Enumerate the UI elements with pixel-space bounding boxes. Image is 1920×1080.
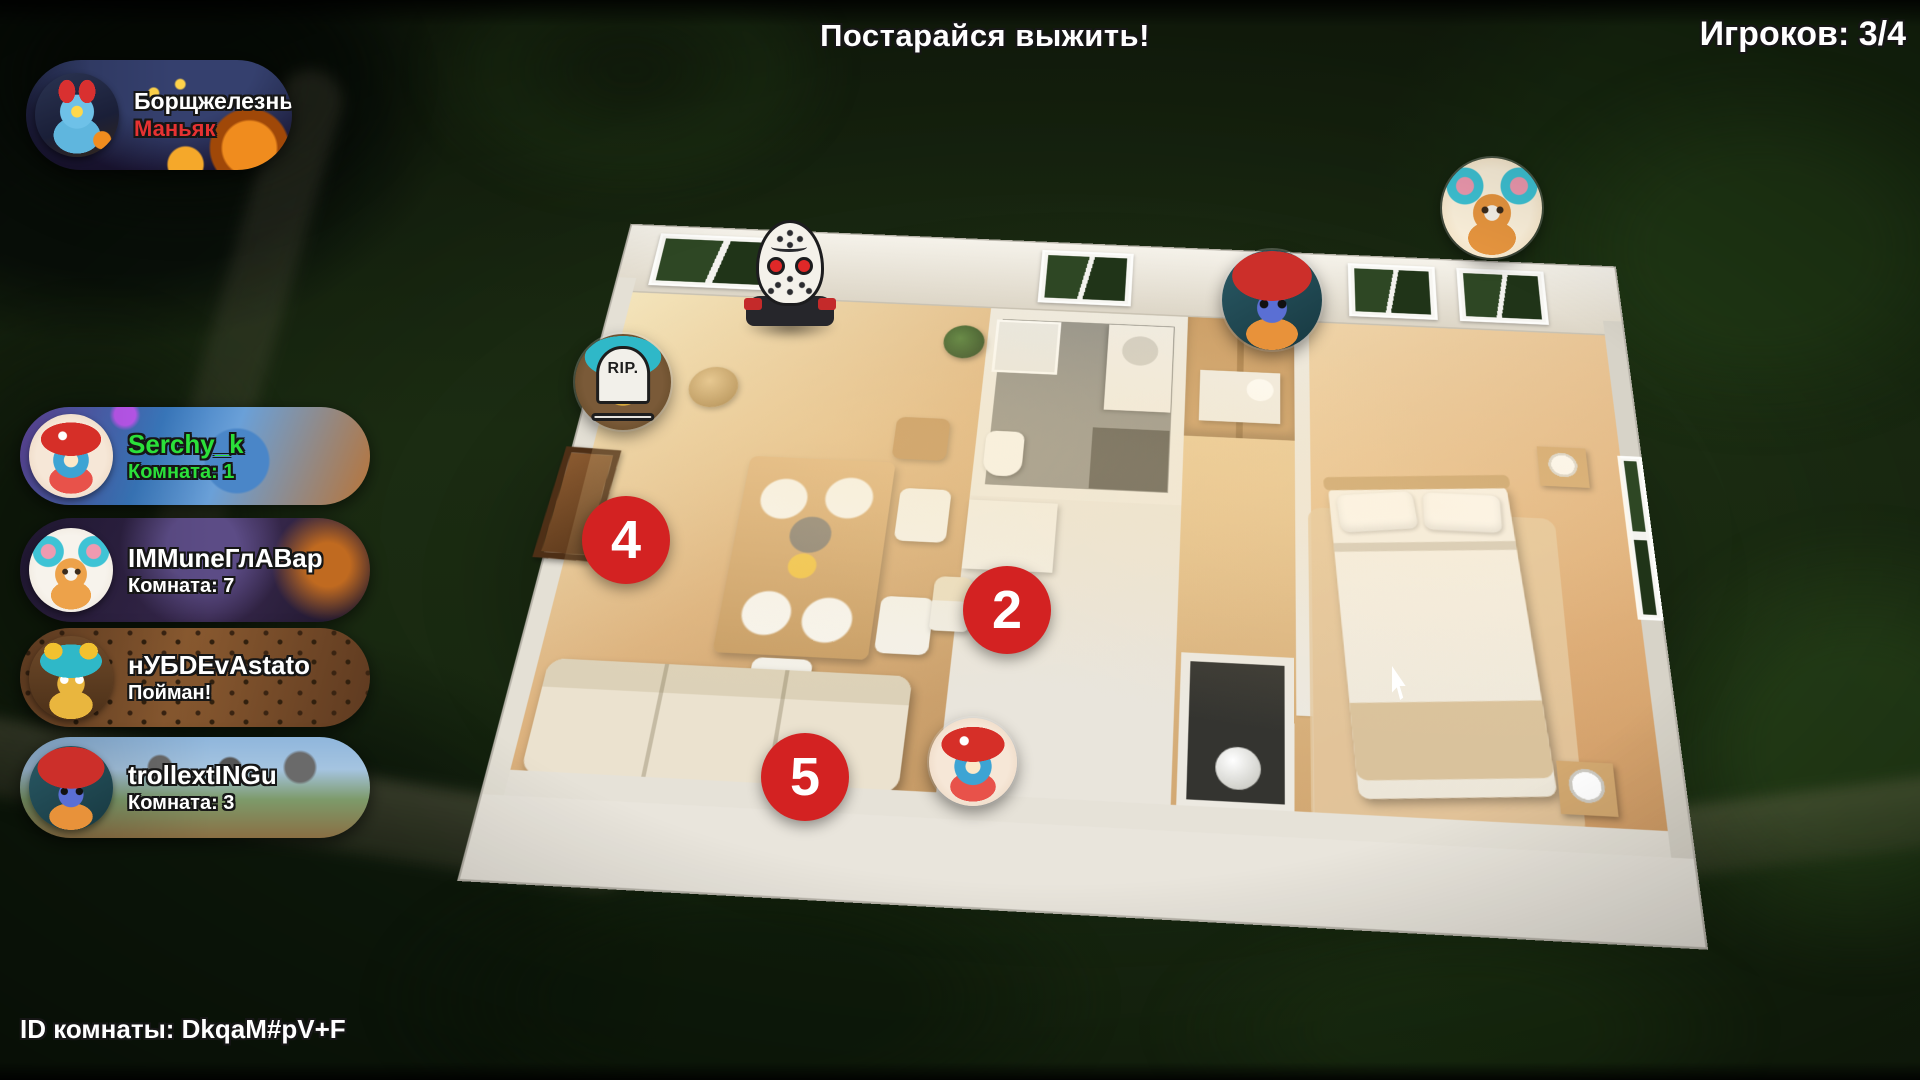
player-card-nub[interactable]: нУБDEvAstato Пойман! xyxy=(20,628,370,727)
forest-blob xyxy=(420,0,840,200)
objective-title: Постарайся выжить! xyxy=(820,18,1150,54)
player-card-serchy[interactable]: Serchy_k Комната: 1 xyxy=(20,407,370,505)
mask-eye xyxy=(795,257,813,275)
bathroom-sink xyxy=(1104,324,1174,412)
hockey-mask-icon xyxy=(756,220,824,306)
player-map-token-troll xyxy=(1222,250,1322,350)
window-glass xyxy=(1463,273,1542,319)
player-status: Комната: 7 xyxy=(128,576,323,596)
bed-fold xyxy=(1334,541,1517,552)
tombstone-icon: RIP. xyxy=(596,346,650,404)
dining-chair xyxy=(874,596,935,656)
window xyxy=(1456,268,1549,325)
room-marker-number: 5 xyxy=(790,746,820,808)
nightstand xyxy=(1537,446,1590,488)
room-marker-2[interactable]: 2 xyxy=(963,566,1051,654)
room-marker-5[interactable]: 5 xyxy=(761,733,849,821)
player-name: IMMuneГлАВар xyxy=(128,545,323,571)
pillow xyxy=(1336,491,1419,533)
player-map-token-mouse xyxy=(1442,158,1542,258)
window xyxy=(1038,250,1134,307)
mask-brow xyxy=(771,242,807,252)
window-glass xyxy=(1044,255,1127,301)
caught-player-rip-token: RIP. xyxy=(575,334,671,430)
room-marker-number: 4 xyxy=(611,509,641,571)
tombstone-base xyxy=(591,413,654,422)
hall-cabinet xyxy=(1199,370,1280,424)
window xyxy=(1348,263,1438,320)
toilet xyxy=(982,430,1025,476)
maniac-player-card[interactable]: Борщжелезный Маньяк xyxy=(26,60,292,170)
bathroom-mat xyxy=(1089,427,1170,492)
player-card-immune[interactable]: IMMuneГлАВар Комната: 7 xyxy=(20,518,370,622)
shower xyxy=(991,319,1061,374)
kitchen-counter xyxy=(962,499,1058,572)
player-card-troll[interactable]: trollextINGu Комната: 3 xyxy=(20,737,370,838)
dining-chair xyxy=(891,417,950,461)
apartment-floorplan xyxy=(460,225,1706,947)
room-id-label: ID комнаты: DkqaM#pV+F xyxy=(20,1014,346,1045)
maniac-avatar xyxy=(35,73,119,157)
player-map-token-serchy xyxy=(929,718,1017,806)
player-status: Комната: 1 xyxy=(128,462,244,482)
player-avatar xyxy=(29,528,113,612)
player-name: trollextINGu xyxy=(128,762,277,788)
player-name: Serchy_k xyxy=(128,431,244,457)
room-marker-number: 2 xyxy=(992,579,1022,641)
player-avatar xyxy=(29,414,113,498)
rip-label: RIP. xyxy=(607,360,638,378)
maniac-name: Борщжелезный xyxy=(134,90,292,113)
player-status: Комната: 3 xyxy=(128,793,277,813)
bed-throw xyxy=(1350,700,1555,780)
utility-closet xyxy=(1176,652,1295,814)
maniac-map-token xyxy=(750,220,830,326)
shoulder-pad xyxy=(744,298,762,310)
bed-headboard xyxy=(1323,475,1511,490)
player-avatar xyxy=(29,746,113,830)
maniac-role-badge: Маньяк xyxy=(134,118,292,140)
player-avatar xyxy=(29,636,113,720)
shoulder-pad xyxy=(818,298,836,310)
mask-eye xyxy=(767,257,785,275)
players-counter: Игроков: 3/4 xyxy=(1700,15,1906,54)
player-name: нУБDEvAstato xyxy=(128,652,310,678)
game-screen: 4 2 5 RIP. Постарайся выжить! Игроков: 3… xyxy=(0,0,1920,1080)
room-marker-4[interactable]: 4 xyxy=(582,496,670,584)
dining-chair xyxy=(894,488,952,543)
player-status: Пойман! xyxy=(128,683,310,703)
boiler xyxy=(1215,746,1261,791)
nightstand xyxy=(1556,761,1619,817)
window-glass xyxy=(1354,268,1431,314)
pillow xyxy=(1422,492,1502,533)
